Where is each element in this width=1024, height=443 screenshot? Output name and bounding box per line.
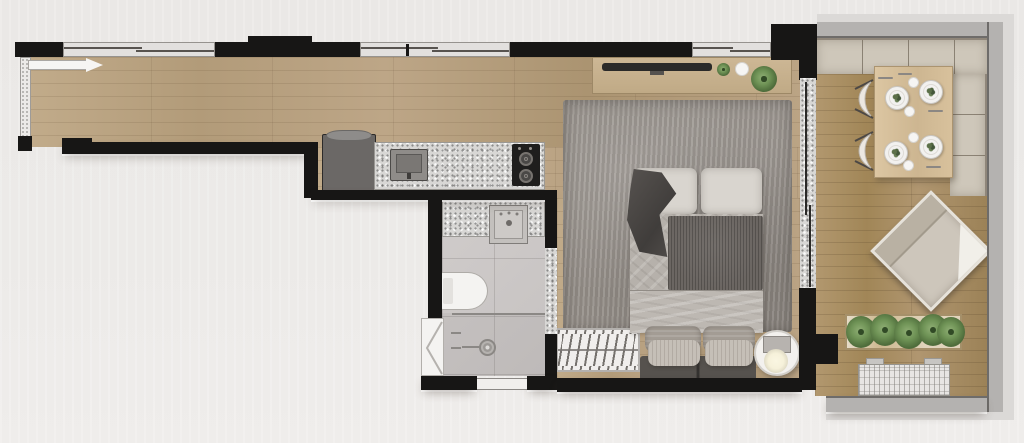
table-bowl — [908, 132, 919, 143]
dinner-plate — [919, 135, 943, 159]
bedroom-south-wall — [557, 378, 802, 392]
table-lamp-glow — [764, 349, 788, 373]
sliding-door-track — [800, 78, 816, 288]
cooktop-knob — [529, 147, 532, 150]
kitchen-sink — [390, 149, 428, 181]
parapet-shadow-top — [817, 14, 1013, 22]
burner-icon — [519, 152, 533, 166]
divider-pier-lower — [799, 288, 816, 390]
planter-plant — [937, 317, 965, 347]
dinner-plate — [919, 80, 943, 104]
bathroom-vent-opening — [477, 378, 527, 390]
bathroom-east-wall-upper — [545, 198, 557, 248]
corridor-south-wall-end — [62, 138, 92, 154]
top-wall-segment-b-ledge — [248, 36, 312, 43]
tv — [602, 63, 712, 71]
entry-sliding-door — [28, 60, 88, 70]
balcony-parapet-right — [987, 22, 1003, 412]
parapet-shadow-right — [1003, 14, 1014, 420]
burner-icon — [519, 169, 533, 183]
top-wall-segment-b — [215, 42, 360, 57]
shower-control — [451, 332, 461, 334]
chair-curve-icon — [849, 130, 875, 172]
window-corridor-left — [63, 42, 215, 57]
bathroom-door — [421, 318, 444, 376]
table-bowl — [908, 77, 919, 88]
cutlery — [898, 73, 912, 75]
sofa-pillow-front-left — [648, 340, 700, 366]
top-wall-segment-a — [15, 42, 63, 57]
window-corridor-right — [360, 42, 510, 57]
ac-unit — [858, 364, 950, 396]
bed-blanket — [668, 216, 763, 290]
balcony-parapet-top — [817, 22, 1003, 38]
bathroom-door-threshold — [545, 248, 557, 334]
shower-arm — [462, 346, 480, 348]
shower-control — [451, 347, 461, 349]
door-leaf-chevron-icon — [422, 319, 445, 377]
table-bowl — [904, 106, 915, 117]
floor-plan — [0, 0, 1024, 443]
window-bedroom — [692, 42, 771, 57]
top-right-corner-pier — [771, 24, 817, 60]
divider-pier-arm — [816, 334, 838, 364]
entry-corner-stub — [18, 136, 32, 151]
vanity-sink — [489, 205, 528, 244]
dining-chair — [849, 78, 875, 120]
parapet-shadow-bottom — [826, 412, 1003, 420]
top-right-corner-leg — [799, 58, 817, 80]
cutlery — [928, 110, 943, 112]
sliding-glass-panel-a — [805, 82, 807, 215]
cooktop-knob — [518, 147, 521, 150]
toilet — [438, 272, 488, 310]
decor-bowl — [735, 62, 749, 76]
cooktop — [512, 144, 540, 186]
bathroom-south-wall-left — [421, 376, 477, 390]
chair-curve-icon — [849, 78, 875, 120]
cutlery — [926, 166, 941, 168]
refrigerator — [322, 134, 376, 194]
cutlery — [878, 77, 893, 79]
dining-chair — [849, 130, 875, 172]
bed-pillow-right — [701, 168, 762, 214]
bathroom-west-wall-upper — [428, 198, 442, 318]
sofa-pillow-front-right — [705, 340, 753, 366]
corridor-south-wall — [62, 142, 312, 154]
slatted-rack — [556, 328, 640, 372]
top-wall-segment-c — [510, 42, 692, 57]
window-mullion-tick — [406, 44, 409, 56]
sliding-glass-panel-b — [809, 205, 811, 287]
balcony-parapet-bottom — [826, 396, 987, 412]
shower-glass-partition — [452, 313, 545, 315]
balcony-bench-right — [950, 74, 987, 196]
decor-plant-small — [717, 63, 730, 76]
decor-plant-large — [751, 66, 777, 92]
table-bowl — [903, 160, 914, 171]
shower-drain — [479, 339, 496, 356]
bathroom-south-wall-right — [527, 376, 557, 390]
